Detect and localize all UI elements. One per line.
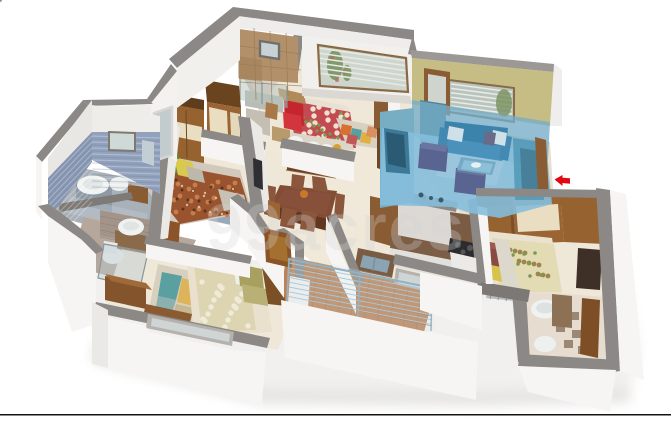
svg-text:99acres: 99acres: [206, 190, 466, 264]
